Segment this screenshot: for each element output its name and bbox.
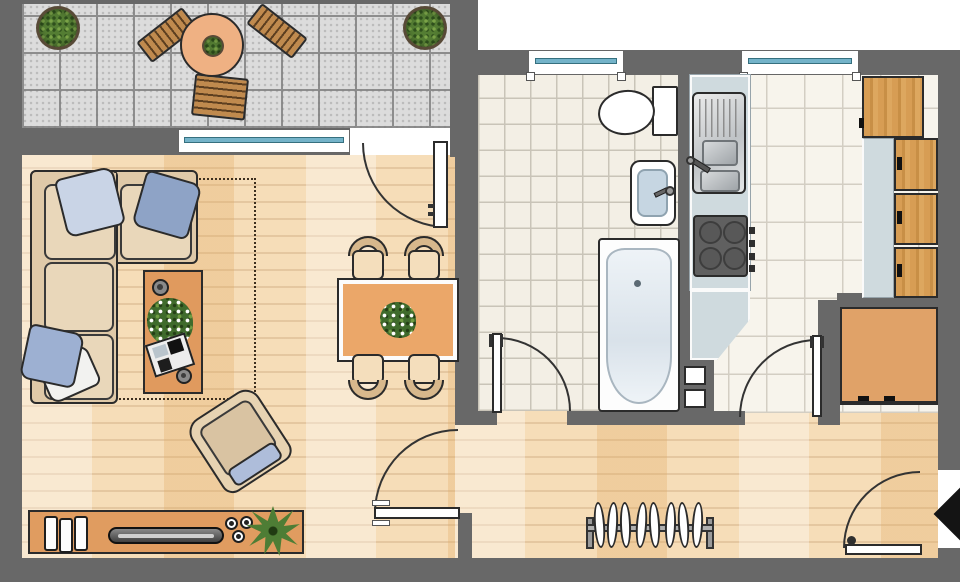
tall-cabinet-handle — [859, 118, 864, 128]
coffee-table-cup-2 — [176, 368, 192, 384]
bathtub-drain — [634, 280, 641, 287]
stove-knob-4 — [749, 265, 755, 272]
stove — [693, 215, 748, 277]
balcony-door-leaf — [433, 141, 448, 228]
chair-back-ring — [404, 380, 444, 400]
stove-knob-3 — [749, 253, 755, 260]
sofa-seat-mid — [44, 262, 114, 332]
cabinet-handle — [897, 264, 902, 277]
wall-cabinet-3 — [894, 247, 938, 298]
balcony-plant-pot-2 — [403, 6, 447, 50]
burner-2 — [723, 221, 746, 244]
wall-bath-bottom-left — [455, 411, 497, 425]
living-door-jamb-bottom — [372, 520, 390, 526]
sink-basin-small — [702, 140, 738, 166]
bathtub-basin — [606, 248, 672, 404]
wall-living-door-stub — [458, 513, 472, 558]
dining-chair-back — [348, 380, 388, 400]
bathroom-window-glazing — [535, 58, 617, 64]
coat-rack-post-right — [706, 517, 714, 549]
kitchen-door-hinge-2 — [821, 336, 824, 348]
dining-chair-seat — [408, 250, 440, 280]
book-1 — [44, 516, 58, 551]
wall-left-outer — [0, 0, 22, 558]
bathroom-window-jamb-left — [526, 72, 535, 81]
wall-right-lower — [938, 548, 960, 558]
book-3 — [74, 516, 88, 551]
dining-chair-top-right — [404, 236, 444, 282]
toilet-cistern — [652, 86, 678, 136]
magazine-cover-gray — [152, 344, 169, 359]
kitchen-window-jamb-right — [852, 72, 861, 81]
magazine-cover-dark-1 — [167, 338, 184, 355]
tall-cabinet — [862, 76, 924, 138]
stove-knob-2 — [749, 240, 755, 247]
niche-cabinet-handle-1 — [858, 396, 869, 401]
dining-chair-bottom-right — [404, 354, 444, 402]
living-door-leaf — [374, 507, 460, 519]
tealight-3 — [232, 530, 245, 543]
cabinet-handle — [897, 157, 902, 170]
kitchen-door-hinge-1 — [810, 336, 813, 348]
burner-4 — [723, 247, 746, 270]
balcony-railing-top — [22, 0, 450, 4]
sink-drainer — [699, 99, 741, 137]
cabinet-handle — [897, 211, 902, 224]
wall-cabinet-2 — [894, 193, 938, 245]
stove-knob-1 — [749, 227, 755, 234]
tealight-1 — [225, 517, 238, 530]
dining-table-bouquet — [380, 302, 416, 338]
entrance-door-knob — [847, 536, 856, 545]
bathroom-window-jamb-right — [617, 72, 626, 81]
wall-bottom-outer — [0, 558, 960, 582]
garden-table-plant — [202, 35, 224, 57]
living-door-jamb-top — [372, 500, 390, 506]
dining-chair-back — [404, 380, 444, 400]
wall-bath-bottom-right — [567, 411, 745, 425]
living-room-window-glazing — [184, 137, 344, 143]
washbasin-faucet-knob — [665, 186, 675, 196]
shaft-opening-1 — [684, 366, 706, 385]
wall-living-bath-divider — [455, 75, 478, 425]
kitchen-sink-unit — [692, 92, 746, 194]
deck-chair-bottom — [191, 73, 249, 120]
sofa-pillow-blue — [19, 323, 85, 389]
wall-right-upper — [938, 50, 960, 470]
kitchen-side-counter — [862, 138, 894, 298]
balcony-door-handle-1 — [428, 204, 434, 208]
tv-flatscreen — [108, 527, 224, 544]
shaft-opening-2 — [684, 389, 706, 408]
magazine-cover-dark-2 — [157, 358, 172, 373]
coffee-table-cup-1 — [152, 279, 169, 296]
kitchen-window-glazing — [748, 58, 852, 64]
floor-plan — [0, 0, 960, 582]
entrance-door-leaf — [845, 544, 922, 555]
kitchen-faucet-knob — [686, 156, 695, 165]
sink-basin-large — [700, 170, 740, 192]
dining-chair-top-left — [348, 236, 388, 282]
bathroom-door-hinge-1 — [489, 334, 492, 347]
niche-cabinet — [840, 307, 938, 405]
wall-cabinet-1 — [894, 138, 938, 191]
dining-chair-bottom-left — [348, 354, 388, 402]
bathroom-door-hinge-2 — [500, 334, 503, 347]
burner-3 — [699, 247, 722, 270]
book-2 — [59, 518, 73, 553]
burner-1 — [699, 221, 722, 244]
balcony-door-handle-2 — [428, 212, 434, 216]
balcony-plant-pot-1 — [36, 6, 80, 50]
niche-cabinet-handle-2 — [884, 396, 895, 401]
chair-back-ring — [348, 380, 388, 400]
tv-screen-line — [118, 534, 214, 538]
dining-chair-seat — [352, 250, 384, 280]
